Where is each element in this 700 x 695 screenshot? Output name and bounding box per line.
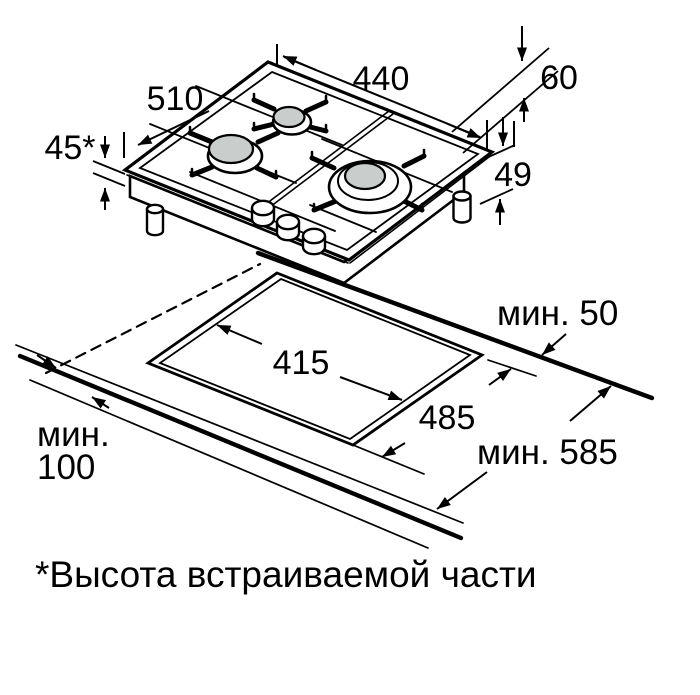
label-body-49: 49 xyxy=(494,156,532,194)
dim-min50-leader xyxy=(542,334,566,355)
installation-diagram: 440 510 45* 60 49 415 485 мин. 50 мин. 5… xyxy=(0,0,700,695)
dim-min585-arrow-front xyxy=(437,472,487,509)
dim-60-ref-top xyxy=(452,48,549,132)
cutout-front-extension xyxy=(353,445,424,474)
label-min-50: мин. 50 xyxy=(497,294,618,333)
hob-foot-left xyxy=(147,205,163,235)
hob-foot-right xyxy=(454,192,471,223)
label-height-60: 60 xyxy=(540,59,578,97)
burner-wok xyxy=(329,161,411,213)
dim-485-arrow-down xyxy=(382,443,405,457)
label-min-100-value: 100 xyxy=(37,448,95,487)
dim-45-ref-bottom xyxy=(93,173,125,186)
label-min-585: мин. 585 xyxy=(477,433,618,472)
footnote-builtin-height: *Высота встраиваемой части xyxy=(35,554,537,595)
label-cutout-485: 485 xyxy=(419,399,476,437)
diagram-canvas: 440 510 45* 60 49 415 485 мин. 50 мин. 5… xyxy=(0,0,700,695)
cutout-rear-extension xyxy=(488,360,536,376)
label-depth-510: 510 xyxy=(147,80,204,118)
hidden-edge-dashed xyxy=(46,264,260,373)
dim-485-arrow-up xyxy=(489,369,511,385)
dim-415-arrow-right xyxy=(340,377,402,400)
dim-415-arrow-left xyxy=(217,325,262,344)
dim-min585-arrow-back xyxy=(570,386,611,421)
label-builtin-45: 45* xyxy=(44,129,95,167)
label-cutout-415: 415 xyxy=(273,344,330,382)
dim-440-arrow-left xyxy=(283,56,316,70)
dim-45-ref-top xyxy=(93,161,125,174)
label-width-440: 440 xyxy=(353,60,410,98)
